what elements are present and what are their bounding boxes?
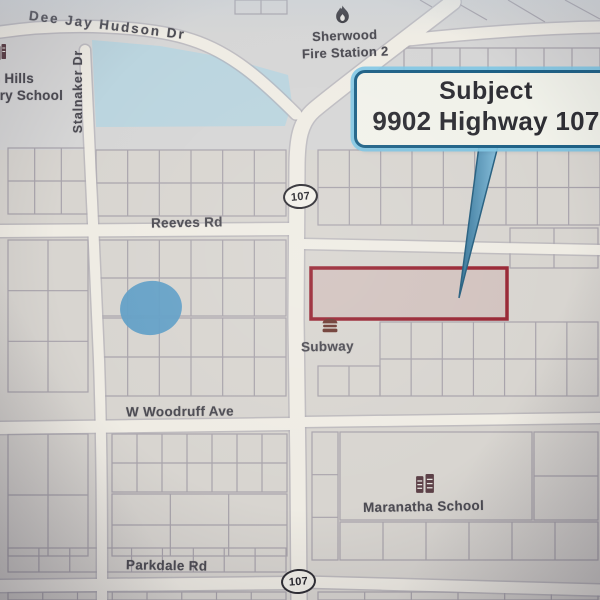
map-canvas <box>0 0 600 600</box>
subject-parcel-outline <box>311 268 507 319</box>
map-photo: Dee Jay Hudson Dr n Hills ary School Sta… <box>0 0 600 600</box>
